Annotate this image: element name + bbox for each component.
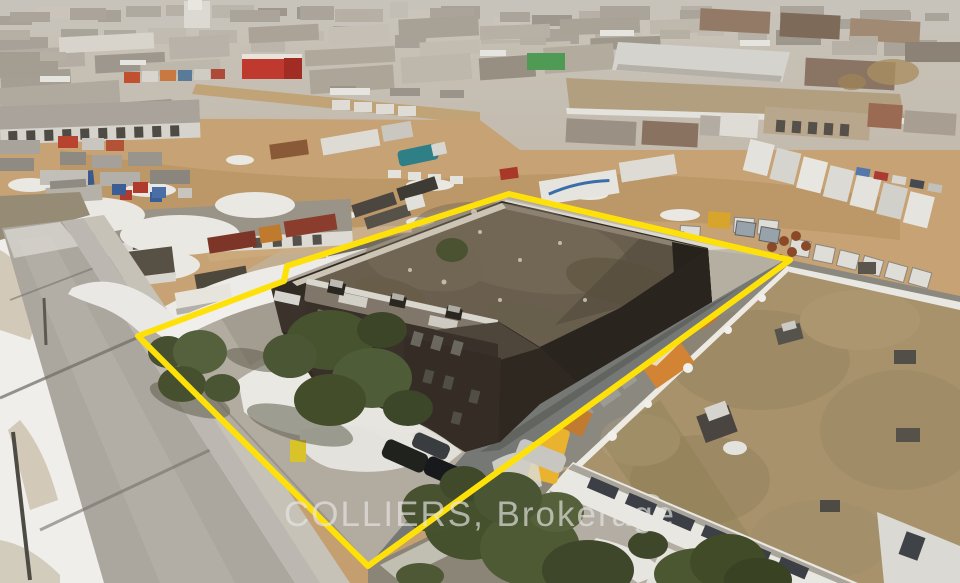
svg-text:COLLIERS, Brokerage: COLLIERS, Brokerage <box>284 495 676 534</box>
